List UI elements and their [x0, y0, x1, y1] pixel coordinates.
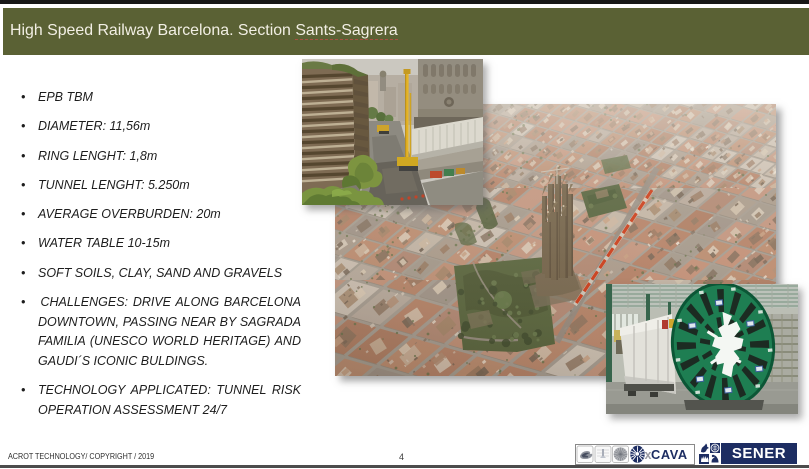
svg-text:CAVA: CAVA: [651, 447, 688, 462]
